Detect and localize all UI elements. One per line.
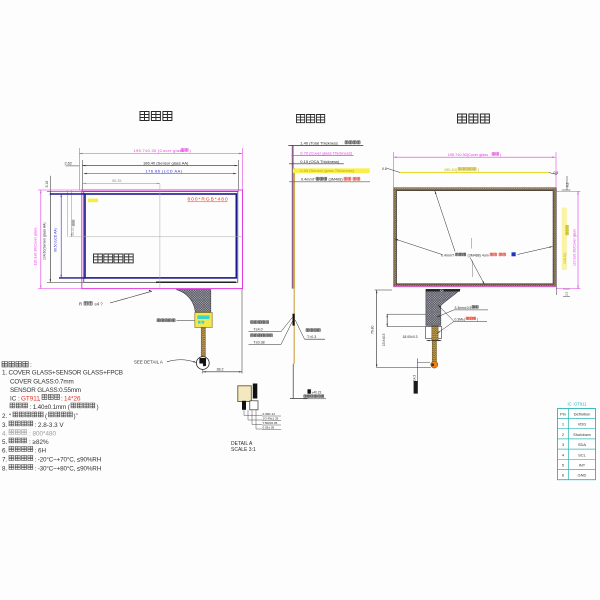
- svg-text:INT: INT: [579, 463, 586, 468]
- svg-text:(3M468): (3M468): [468, 253, 481, 257]
- svg-text:0.05±.05: 0.05±.05: [263, 426, 275, 430]
- svg-text:5.: 5.: [2, 439, 8, 446]
- svg-text:0.3M±(: 0.3M±(: [455, 317, 466, 321]
- svg-text:0.4mmT: 0.4mmT: [301, 178, 316, 182]
- svg-text:: 2.8-3.3 V: : 2.8-3.3 V: [35, 422, 65, 429]
- svg-text:: 800*480: : 800*480: [29, 431, 56, 438]
- svg-text:R: R: [79, 302, 82, 307]
- svg-text:≥4 ?: ≥4 ?: [95, 302, 104, 307]
- svg-text:3.2: 3.2: [565, 291, 569, 296]
- svg-text:190.10(: 190.10(: [444, 168, 458, 172]
- svg-text:4.: 4.: [2, 431, 8, 438]
- svg-text:0.70 (Cover glass Thickness): 0.70 (Cover glass Thickness): [300, 150, 352, 155]
- svg-text:0.15 (OCA Thickness): 0.15 (OCA Thickness): [300, 159, 340, 164]
- svg-text:SCL: SCL: [578, 452, 587, 457]
- svg-text:0.8: 0.8: [554, 171, 559, 175]
- svg-text:: 1.40±0.1mm (: : 1.40±0.1mm (: [30, 404, 71, 411]
- svg-text:GND: GND: [578, 473, 587, 478]
- svg-text:): ): [97, 404, 99, 411]
- svg-text:7.: 7.: [2, 457, 8, 464]
- svg-text:99.50 (LCD AA): 99.50 (LCD AA): [54, 228, 58, 252]
- svg-text:VDD: VDD: [578, 422, 587, 427]
- svg-text:0.8: 0.8: [382, 167, 387, 171]
- svg-text:T=0.3: T=0.3: [307, 335, 316, 339]
- svg-text:: 6H: : 6H: [35, 448, 47, 455]
- svg-text:186.40 (Sensor glass AA): 186.40 (Sensor glass AA): [143, 160, 189, 165]
- svg-text:55.15: 55.15: [71, 228, 75, 236]
- svg-text:,: ,: [39, 396, 41, 403]
- svg-text:38.2: 38.2: [217, 368, 224, 372]
- svg-text:Pin: Pin: [560, 412, 566, 417]
- svg-text:(3M468): (3M468): [329, 178, 344, 182]
- svg-text:95.35: 95.35: [112, 179, 122, 183]
- svg-text:T.500±0.05: T.500±0.05: [263, 421, 278, 425]
- svg-text:1.40 (Total Thickness: 1.40 (Total Thickness: [300, 140, 338, 145]
- svg-text:3.3mm±0.5: 3.3mm±0.5: [455, 306, 472, 310]
- svg-text:8.: 8.: [2, 466, 8, 473]
- svg-text:0.55 (Sensor glass Thickness): 0.55 (Sensor glass Thickness): [300, 168, 354, 173]
- svg-text:104.30(: 104.30(: [563, 252, 567, 264]
- svg-text:79.80: 79.80: [371, 325, 375, 334]
- svg-text:): ): [477, 317, 478, 321]
- svg-text:195.7±0.30(Cover glass: 195.7±0.30(Cover glass: [448, 153, 488, 157]
- svg-text:COVER GLASS:0.7mm: COVER GLASS:0.7mm: [10, 379, 74, 386]
- svg-text:SEE DETAIL A: SEE DETAIL A: [134, 359, 163, 364]
- svg-text:6.2: 6.2: [566, 182, 570, 187]
- svg-text:Definition: Definition: [574, 412, 591, 417]
- svg-text:0.4mmT: 0.4mmT: [441, 253, 455, 257]
- svg-text:6.: 6.: [2, 448, 8, 455]
- svg-text:1. COVER GLASS+SENSOR GLASS+FP: 1. COVER GLASS+SENSOR GLASS+FPCB: [2, 370, 123, 377]
- svg-text:: ≥82%: : ≥82%: [29, 439, 49, 446]
- svg-text:3.: 3.: [2, 422, 8, 429]
- svg-text:Shutdown: Shutdown: [573, 432, 591, 437]
- svg-text:IC :: IC :: [10, 396, 20, 403]
- svg-text:104.60(Sensor glass AA): 104.60(Sensor glass AA): [42, 222, 46, 260]
- svg-text:≥40.23: ≥40.23: [312, 390, 322, 394]
- svg-text:: -30°C~+80°C, ≤90%RH: : -30°C~+80°C, ≤90%RH: [35, 465, 102, 473]
- svg-text:T≤4.0: T≤4.0: [254, 328, 263, 332]
- svg-text::: :: [61, 396, 63, 403]
- svg-text:18.00±0.3: 18.00±0.3: [403, 335, 418, 339]
- svg-text:4um: 4um: [482, 253, 489, 257]
- svg-text:3.16: 3.16: [45, 181, 49, 188]
- svg-text:)”: )”: [74, 413, 78, 420]
- svg-text:: -20°C~+70°C, ≤90%RH: : -20°C~+70°C, ≤90%RH: [35, 456, 102, 464]
- svg-text:IC :GT911: IC :GT911: [568, 402, 588, 407]
- svg-text:13.9±0.5: 13.9±0.5: [382, 333, 386, 346]
- svg-text:2.: 2.: [2, 413, 8, 420]
- svg-text:2.62: 2.62: [65, 161, 72, 165]
- svg-text::: :: [30, 362, 32, 369]
- svg-text:176.86 (LCD AA): 176.86 (LCD AA): [146, 168, 183, 173]
- svg-text:GT911: GT911: [21, 396, 40, 403]
- svg-text:1/3 49±1.35: 1/3 49±1.35: [263, 417, 279, 421]
- svg-text:14*26: 14*26: [64, 396, 81, 403]
- svg-text:14.3: 14.3: [413, 375, 417, 381]
- svg-text:0.3M±.12: 0.3M±.12: [263, 412, 276, 416]
- svg-text:110.3±0.30(Cover glass: 110.3±0.30(Cover glass: [572, 229, 576, 266]
- svg-text:195.7±0.30 (Cover glass: 195.7±0.30 (Cover glass: [134, 148, 184, 153]
- svg-text:110.3±0.30(Cover glass: 110.3±0.30(Cover glass: [33, 227, 37, 265]
- svg-text:SENSOR GLASS:0.55mm: SENSOR GLASS:0.55mm: [10, 387, 81, 394]
- svg-text:“: “: [9, 413, 11, 420]
- svg-text:SDA: SDA: [578, 442, 587, 447]
- svg-text:SCALE 3:1: SCALE 3:1: [231, 447, 256, 453]
- svg-text:T≤0.38: T≤0.38: [254, 340, 265, 344]
